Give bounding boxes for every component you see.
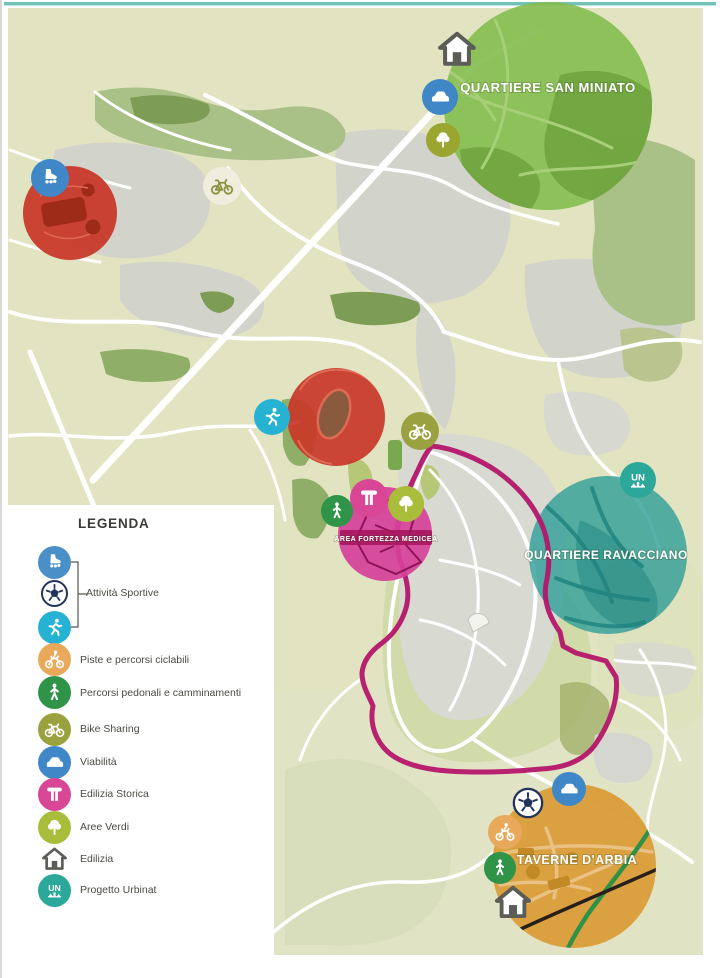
roller-skate-icon — [31, 159, 69, 197]
car-icon — [552, 772, 586, 806]
walker-icon — [321, 495, 353, 527]
legend-label-aree-verdi: Aree Verdi — [80, 820, 129, 834]
label-area-fortezza-medicea: AREA FORTEZZA MEDICEA — [334, 530, 437, 545]
page-edge-line — [0, 0, 2, 978]
bike-sharing-icon — [401, 412, 439, 450]
cyclist-icon — [38, 643, 71, 676]
cyclist-icon — [488, 815, 522, 849]
top-border-line — [4, 2, 716, 6]
runner-icon — [38, 611, 71, 644]
urbinat-icon — [38, 874, 71, 907]
region-area-rossa-stadio — [287, 368, 385, 466]
tree-icon — [426, 123, 460, 157]
walker-icon — [484, 852, 516, 884]
legend-label-edilizia-storica: Edilizia Storica — [80, 787, 149, 801]
runner-icon — [254, 399, 290, 435]
legend-label-attivita-sportive: Attività Sportive — [86, 586, 159, 600]
legend-title: LEGENDA — [78, 516, 150, 531]
legend-label-percorsi-pedonali: Percorsi pedonali e camminamenti — [80, 686, 241, 700]
label-quartiere-san-miniato: QUARTIERE SAN MINIATO — [460, 80, 635, 95]
soccer-ball-icon — [38, 577, 71, 610]
house-icon — [38, 843, 71, 876]
bike-station-icon — [203, 167, 241, 205]
historic-monument-icon — [38, 778, 71, 811]
legend-label-progetto-urbinat: Progetto Urbinat — [80, 883, 156, 897]
walker-icon — [38, 676, 71, 709]
tree-icon — [388, 486, 424, 522]
urbinat-icon — [620, 462, 656, 498]
label-quartiere-ravacciano: QUARTIERE RAVACCIANO — [524, 548, 688, 562]
legend-label-viabilita: Viabilità — [80, 755, 117, 769]
legend-label-bike-sharing: Bike Sharing — [80, 722, 140, 736]
tree-icon — [38, 811, 71, 844]
car-icon — [422, 79, 458, 115]
soccer-ball-icon — [514, 789, 542, 817]
svg-text:AREA FORTEZZA MEDICEA: AREA FORTEZZA MEDICEA — [334, 536, 437, 543]
roller-skate-icon — [38, 546, 71, 579]
legend-label-piste-ciclabili: Piste e percorsi ciclabili — [80, 653, 189, 667]
label-taverne-darbia: TAVERNE D'ARBIA — [517, 853, 637, 867]
legend-label-edilizia: Edilizia — [80, 852, 113, 866]
car-icon — [38, 746, 71, 779]
bicycle-icon — [38, 713, 71, 746]
legend-panel: LEGENDA Attività Sportive Piste e percor… — [8, 505, 274, 958]
historic-monument-icon — [350, 479, 388, 517]
